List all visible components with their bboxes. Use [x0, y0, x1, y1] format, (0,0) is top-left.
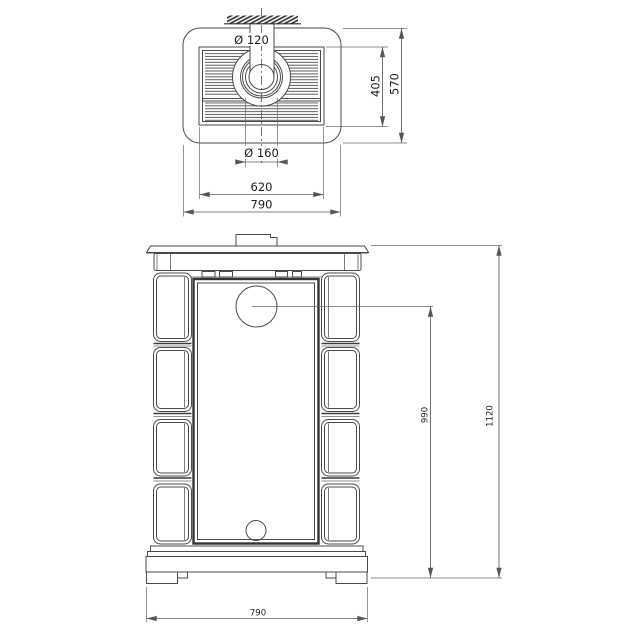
front-view: 990 1120 790 — [146, 235, 502, 623]
dim-label-pipe-diameter: Ø 120 — [234, 33, 269, 47]
clip-row — [176, 272, 338, 278]
dim-label-top-depth: 570 — [388, 73, 402, 95]
firebox-frame — [194, 279, 319, 544]
tile — [322, 420, 360, 477]
top-fascia — [154, 254, 361, 271]
tile — [154, 484, 192, 544]
foot-left — [147, 572, 188, 584]
tile-column-left — [154, 273, 192, 544]
plinth-band-lower — [148, 552, 366, 557]
top-view: Ø 120 Ø 160 620 790 — [183, 8, 407, 217]
tile — [154, 348, 192, 412]
base — [146, 546, 368, 584]
base-box — [146, 557, 368, 573]
top-collar — [236, 235, 277, 247]
top-plate — [147, 246, 369, 253]
dim-pipe-diameter: Ø 120 — [233, 33, 270, 47]
plinth-band-upper — [151, 546, 364, 552]
dim-total-height: 1120 — [371, 246, 502, 579]
tile — [154, 420, 192, 477]
technical-drawing-page: Ø 120 Ø 160 620 790 — [0, 0, 636, 636]
wall-hatch — [224, 16, 301, 24]
stove-dimension-drawing: Ø 120 Ø 160 620 790 — [0, 0, 636, 636]
tile — [154, 273, 192, 342]
tile — [322, 484, 360, 544]
foot-right — [326, 572, 367, 584]
dim-label-total-height: 1120 — [485, 405, 495, 427]
tile — [322, 273, 360, 342]
dim-label-top-width: 790 — [251, 198, 273, 212]
dim-label-flue-height: 990 — [420, 407, 430, 423]
dim-label-front-width: 790 — [250, 609, 266, 619]
tile — [322, 348, 360, 412]
tile-column-right — [322, 273, 360, 544]
dim-label-collar-diameter: Ø 160 — [244, 146, 279, 160]
dim-label-grille-width: 620 — [251, 180, 273, 194]
dim-front-width: 790 — [147, 587, 368, 622]
dim-label-grille-depth: 405 — [369, 75, 383, 97]
